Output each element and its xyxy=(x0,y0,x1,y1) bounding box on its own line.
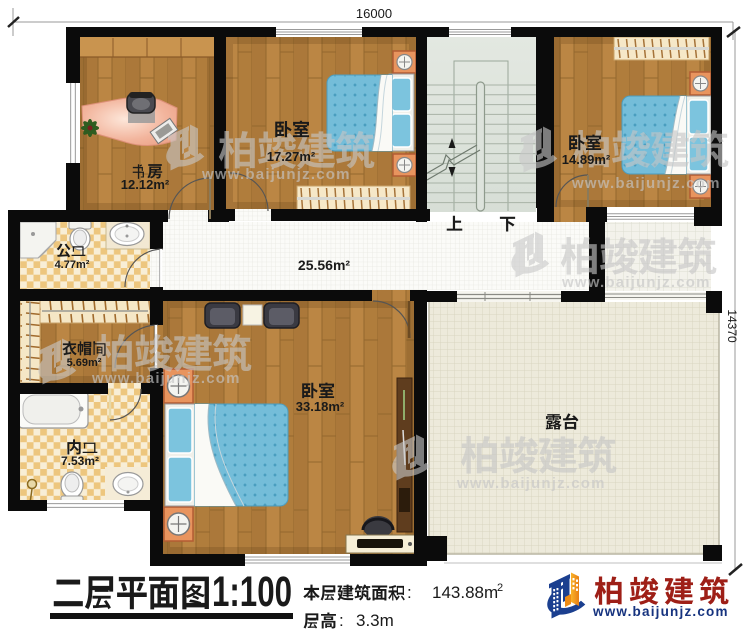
svg-text::: : xyxy=(407,583,412,602)
svg-text:www.baijunjz.com: www.baijunjz.com xyxy=(91,370,241,387)
svg-text:14370: 14370 xyxy=(725,309,739,343)
svg-text:www.baijunjz.com: www.baijunjz.com xyxy=(592,604,729,619)
svg-text:www.baijunjz.com: www.baijunjz.com xyxy=(561,274,711,291)
svg-text:33.18m²: 33.18m² xyxy=(296,399,345,414)
svg-text:12.12m²: 12.12m² xyxy=(121,177,170,192)
svg-text:143.88m: 143.88m xyxy=(432,583,498,602)
svg-text:17.27m²: 17.27m² xyxy=(267,149,316,164)
svg-text:www.baijunjz.com: www.baijunjz.com xyxy=(456,475,606,492)
svg-text:14.89m²: 14.89m² xyxy=(562,152,611,167)
svg-text:2: 2 xyxy=(497,582,503,594)
svg-text:www.baijunjz.com: www.baijunjz.com xyxy=(201,166,351,183)
svg-text:www.baijunjz.com: www.baijunjz.com xyxy=(571,175,721,192)
svg-text:25.56m²: 25.56m² xyxy=(298,257,350,273)
svg-text::: : xyxy=(339,611,344,630)
svg-text:16000: 16000 xyxy=(356,6,392,21)
svg-text:1:100: 1:100 xyxy=(212,568,292,616)
svg-text:4.77m²: 4.77m² xyxy=(55,259,90,271)
svg-text:5.69m²: 5.69m² xyxy=(67,357,102,369)
svg-text:7.53m²: 7.53m² xyxy=(61,454,99,468)
svg-text:3.3m: 3.3m xyxy=(356,611,394,630)
